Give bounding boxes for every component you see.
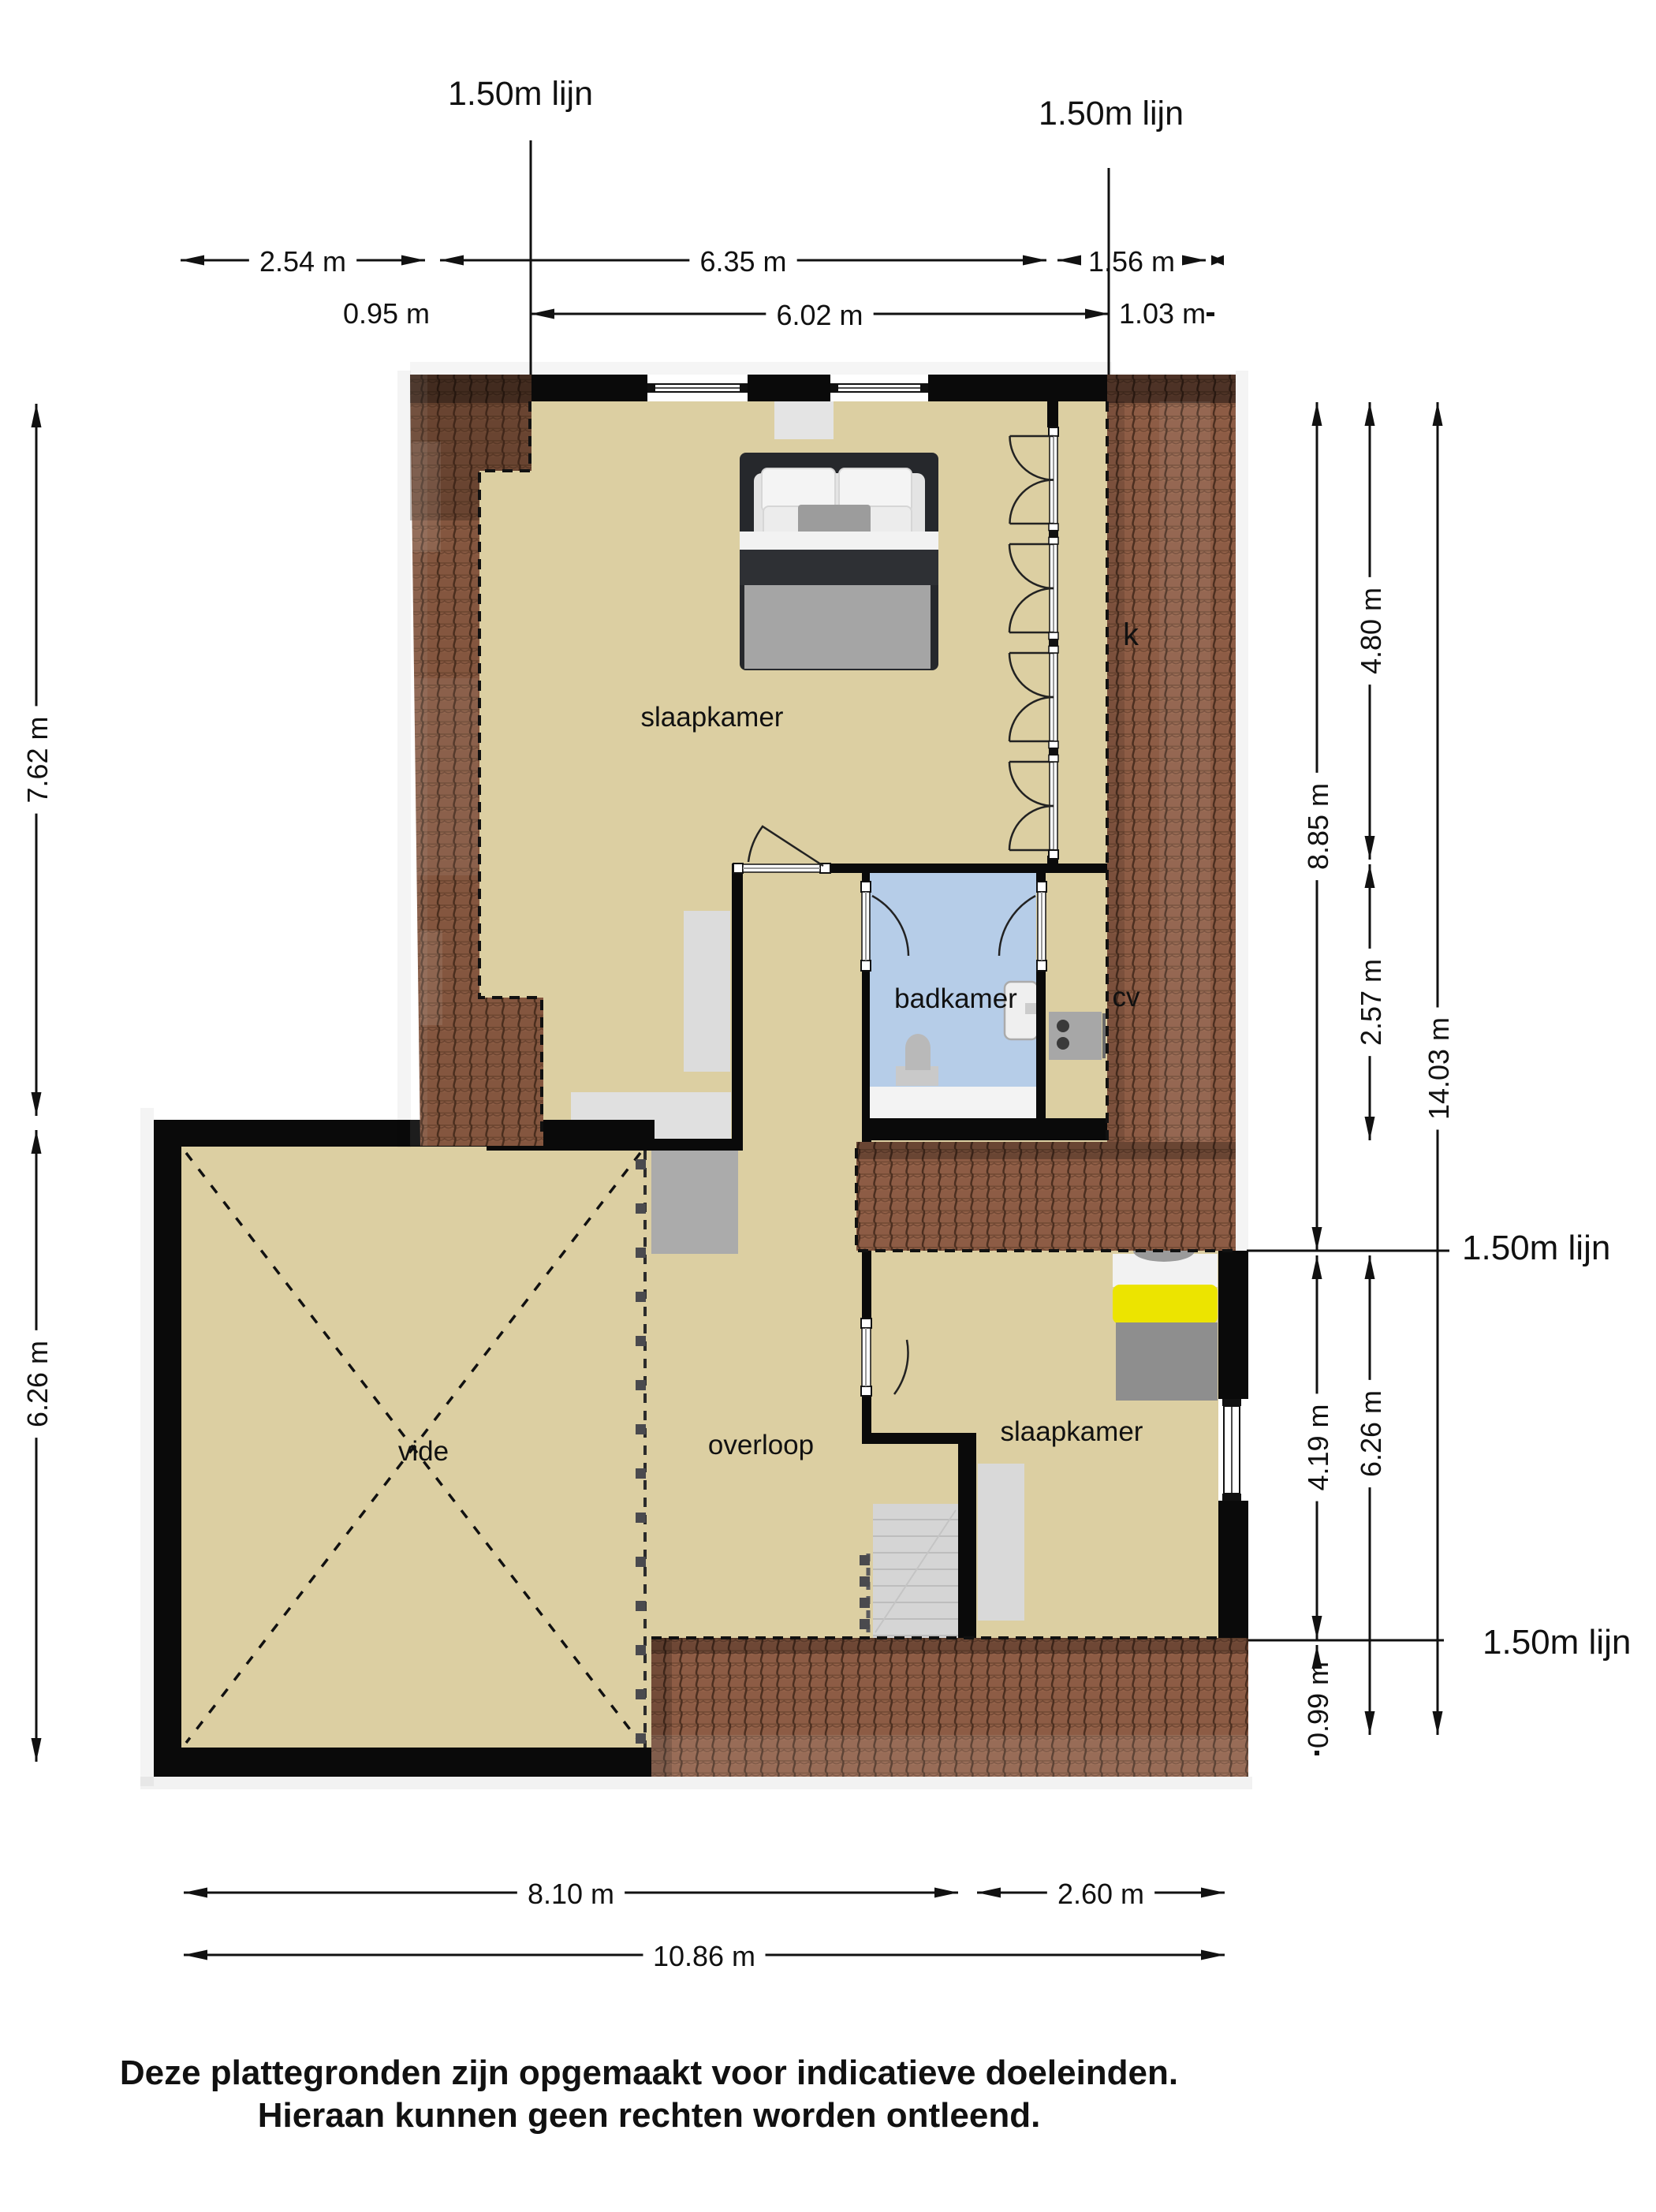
svg-text:1.50m lijn: 1.50m lijn <box>1462 1229 1610 1267</box>
svg-text:8.85 m: 8.85 m <box>1302 783 1334 870</box>
svg-text:1.03 m: 1.03 m <box>1119 297 1206 330</box>
svg-text:14.03 m: 14.03 m <box>1423 1017 1455 1120</box>
svg-text:6.26 m: 6.26 m <box>1355 1390 1387 1477</box>
svg-text:4.19 m: 4.19 m <box>1302 1404 1334 1490</box>
svg-text:4.80 m: 4.80 m <box>1355 588 1387 674</box>
svg-text:10.86 m: 10.86 m <box>653 1940 755 1972</box>
svg-text:6.26 m: 6.26 m <box>21 1341 54 1427</box>
svg-text:0.99 m: 0.99 m <box>1302 1662 1334 1748</box>
svg-text:8.10 m: 8.10 m <box>528 1878 614 1910</box>
svg-text:1.50m lijn: 1.50m lijn <box>1483 1623 1631 1662</box>
svg-text:2.54 m: 2.54 m <box>259 245 346 278</box>
svg-text:slaapkamer: slaapkamer <box>1001 1416 1143 1447</box>
svg-text:1.50m lijn: 1.50m lijn <box>448 75 593 113</box>
svg-text:vide: vide <box>398 1436 449 1467</box>
svg-text:6.35 m: 6.35 m <box>699 245 786 278</box>
svg-text:2.60 m: 2.60 m <box>1057 1878 1144 1910</box>
svg-text:badkamer: badkamer <box>894 983 1017 1014</box>
svg-text:slaapkamer: slaapkamer <box>641 702 784 733</box>
svg-text:0.95 m: 0.95 m <box>343 297 430 330</box>
svg-text:cv: cv <box>1113 982 1141 1013</box>
svg-text:Hieraan kunnen geen rechten wo: Hieraan kunnen geen rechten worden ontle… <box>258 2096 1041 2135</box>
svg-text:7.62 m: 7.62 m <box>21 716 54 803</box>
svg-text:overloop: overloop <box>708 1430 814 1460</box>
svg-text:k: k <box>1123 617 1139 652</box>
svg-text:Deze plattegronden zijn opgema: Deze plattegronden zijn opgemaakt voor i… <box>120 2053 1178 2092</box>
svg-text:1.56 m: 1.56 m <box>1088 245 1175 278</box>
svg-text:1.50m lijn: 1.50m lijn <box>1039 95 1184 132</box>
svg-text:2.57 m: 2.57 m <box>1355 959 1387 1046</box>
svg-text:6.02 m: 6.02 m <box>776 299 863 331</box>
